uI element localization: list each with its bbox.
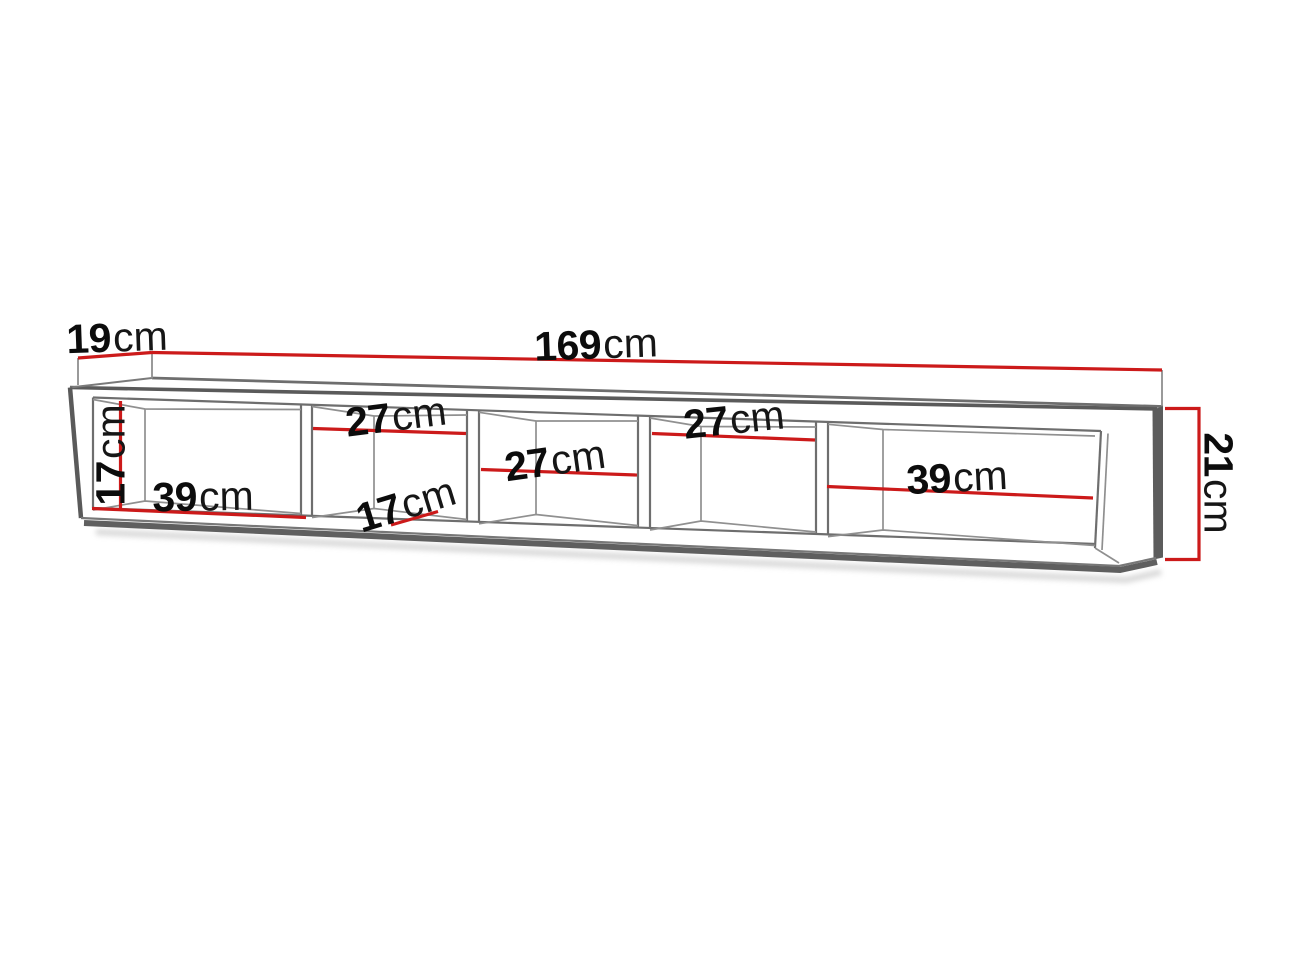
dim-unit: cm xyxy=(1196,479,1242,534)
dim-value: 27 xyxy=(343,394,393,445)
dim-label-height: 21cm xyxy=(1198,432,1239,533)
dim-line-height-21 xyxy=(1165,409,1199,560)
dim-unit: cm xyxy=(548,431,609,484)
dim-label-compartment-5: 39cm xyxy=(905,455,1008,501)
cabinet-top-edges xyxy=(70,378,1163,409)
dim-label-compartment-1: 39cm xyxy=(152,476,254,519)
dim-unit: cm xyxy=(728,391,787,442)
dim-value: 19 xyxy=(66,315,112,363)
dim-unit: cm xyxy=(112,313,168,361)
cabinet-right-side-panel xyxy=(1153,407,1164,560)
dim-unit: cm xyxy=(952,452,1009,501)
dim-label-depth: 19cm xyxy=(66,316,169,361)
dim-value: 21 xyxy=(1196,432,1242,477)
dim-unit: cm xyxy=(602,319,658,367)
dim-value: 39 xyxy=(905,455,952,503)
dim-value: 17 xyxy=(88,461,134,506)
dim-value: 27 xyxy=(681,397,730,447)
dim-label-compartment-4: 27cm xyxy=(682,394,787,445)
dim-unit: cm xyxy=(199,473,254,520)
dim-label-width: 169cm xyxy=(534,322,659,367)
dim-label-interior-height: 17cm xyxy=(91,404,132,505)
dim-value: 39 xyxy=(152,474,197,521)
dim-value: 169 xyxy=(533,321,601,369)
dim-unit: cm xyxy=(389,388,449,440)
dim-unit: cm xyxy=(88,404,134,459)
diagram-canvas: 19cm 169cm 21cm 17cm 39cm 27cm 27cm 27cm… xyxy=(0,0,1301,975)
dim-value: 27 xyxy=(502,439,553,491)
